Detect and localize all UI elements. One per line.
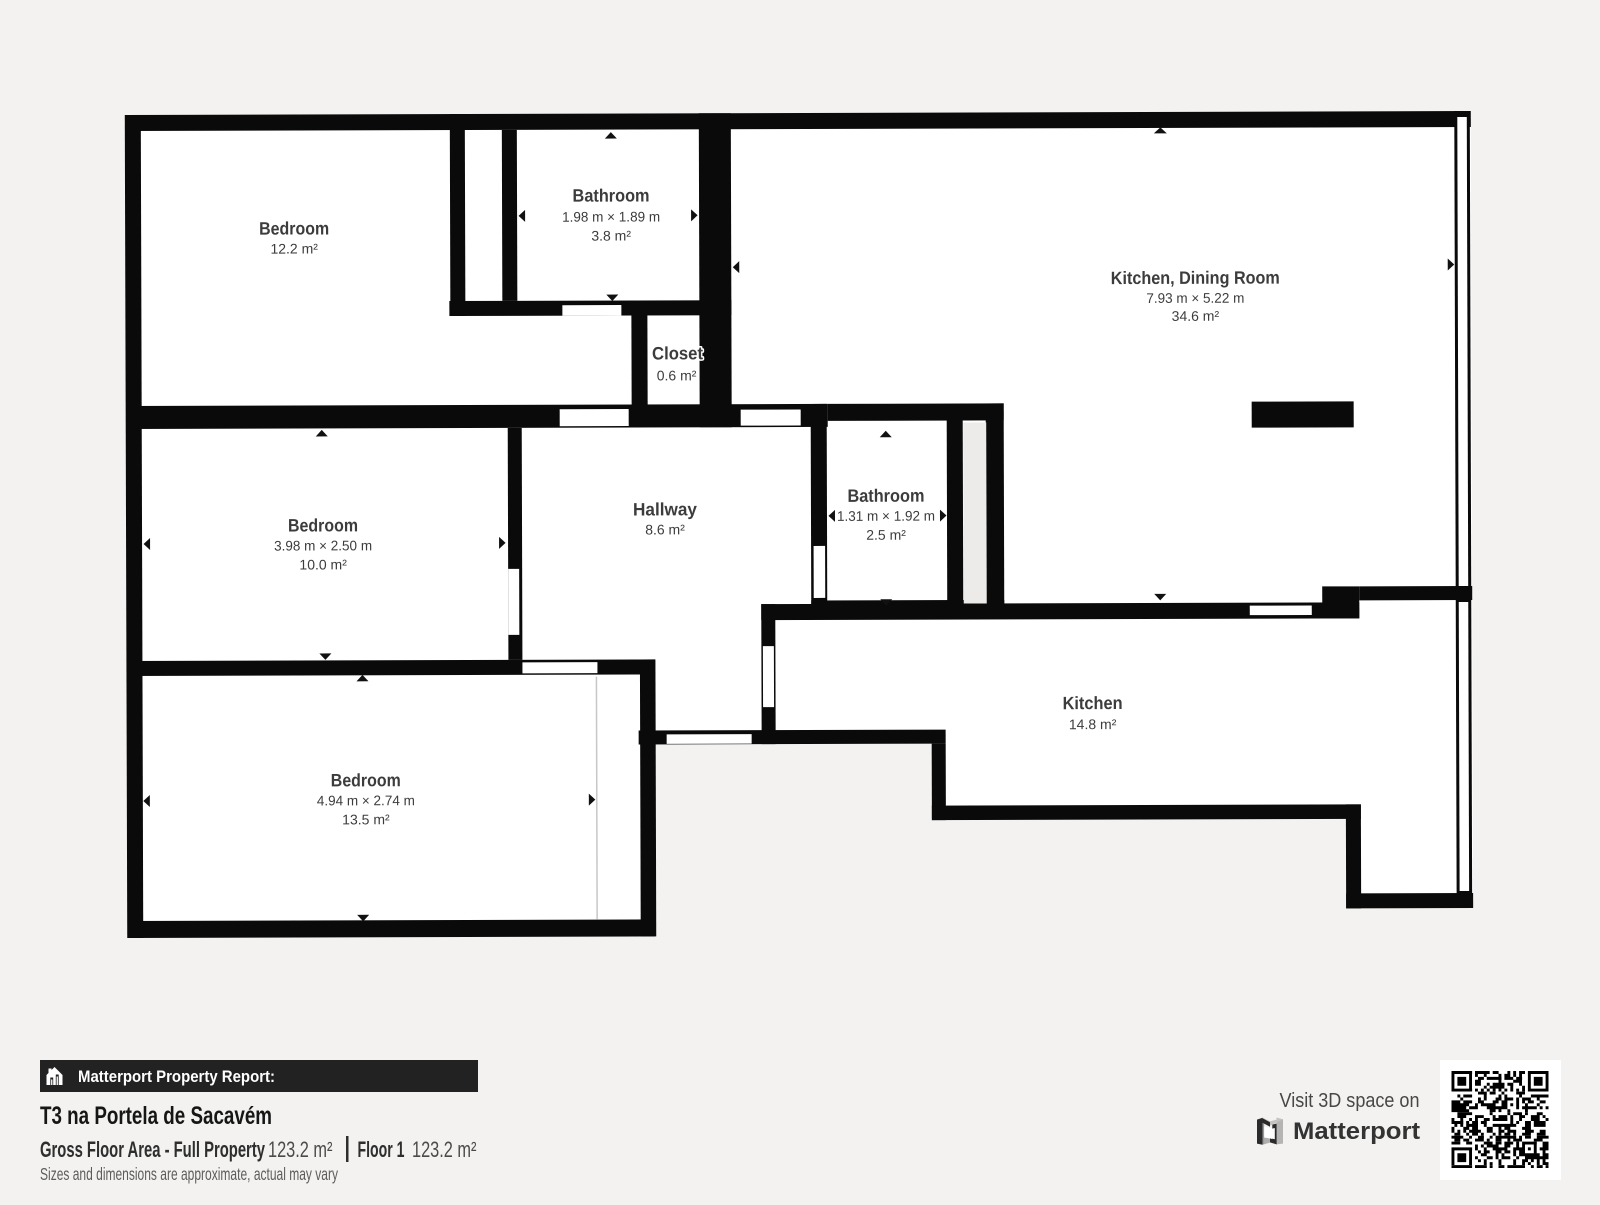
svg-text:Matterport: Matterport <box>1293 1118 1420 1145</box>
svg-text:10.0 m²: 10.0 m² <box>299 556 347 572</box>
svg-text:2.5 m²: 2.5 m² <box>866 527 906 543</box>
svg-text:123.2 m²: 123.2 m² <box>268 1137 333 1162</box>
svg-text:Matterport Property Report:: Matterport Property Report: <box>78 1067 275 1086</box>
svg-text:13.5 m²: 13.5 m² <box>342 811 390 827</box>
svg-text:7.93 m × 5.22 m: 7.93 m × 5.22 m <box>1146 290 1244 306</box>
svg-text:Bedroom: Bedroom <box>259 218 329 238</box>
svg-text:Floor 1: Floor 1 <box>358 1137 405 1162</box>
svg-text:Sizes and dimensions are appro: Sizes and dimensions are approximate, ac… <box>40 1164 338 1184</box>
svg-text:Kitchen, Dining Room: Kitchen, Dining Room <box>1111 268 1280 289</box>
svg-text:Bedroom: Bedroom <box>331 770 401 790</box>
svg-text:Kitchen: Kitchen <box>1063 693 1123 713</box>
svg-text:0.6 m²: 0.6 m² <box>657 367 697 383</box>
svg-text:3.98 m × 2.50 m: 3.98 m × 2.50 m <box>274 537 372 553</box>
svg-text:Gross Floor Area - Full Proper: Gross Floor Area - Full Property <box>40 1137 266 1162</box>
svg-text:1.31 m × 1.92 m: 1.31 m × 1.92 m <box>837 508 935 524</box>
svg-text:34.6 m²: 34.6 m² <box>1172 308 1220 324</box>
svg-text:Hallway: Hallway <box>633 499 697 519</box>
svg-text:4.94 m × 2.74 m: 4.94 m × 2.74 m <box>317 792 415 808</box>
svg-text:14.8 m²: 14.8 m² <box>1069 716 1117 732</box>
svg-text:8.6 m²: 8.6 m² <box>645 521 685 537</box>
svg-text:3.8 m²: 3.8 m² <box>591 228 631 244</box>
svg-text:Visit 3D space on: Visit 3D space on <box>1280 1090 1420 1112</box>
svg-text:Bathroom: Bathroom <box>572 185 649 205</box>
svg-text:12.2 m²: 12.2 m² <box>270 240 318 256</box>
svg-text:Closet: Closet <box>652 343 703 363</box>
svg-text:T3 na Portela de Sacavém: T3 na Portela de Sacavém <box>40 1102 272 1130</box>
svg-text:Bedroom: Bedroom <box>288 515 358 535</box>
svg-text:Bathroom: Bathroom <box>847 486 924 506</box>
svg-text:1.98 m × 1.89 m: 1.98 m × 1.89 m <box>562 208 660 224</box>
svg-text:123.2 m²: 123.2 m² <box>412 1137 477 1162</box>
